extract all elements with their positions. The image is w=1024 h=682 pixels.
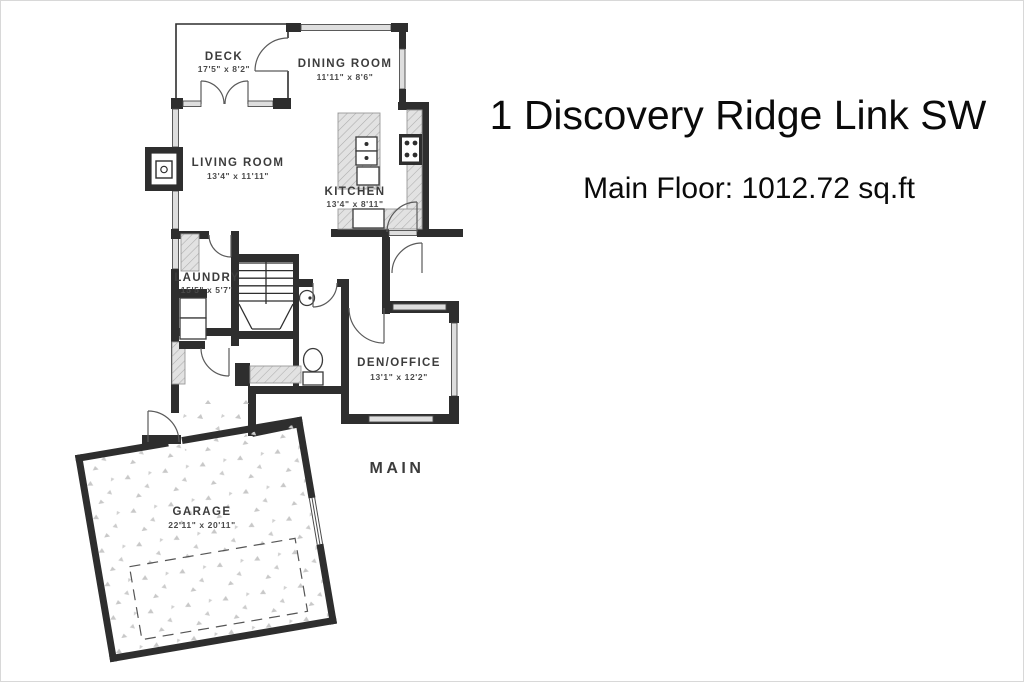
room-garage: [75, 417, 337, 663]
mudroom-bench: [250, 366, 301, 383]
floor-caption: MAIN: [370, 460, 425, 477]
garage-label: GARAGE: [173, 506, 232, 518]
laundry-counter: [181, 234, 199, 271]
living-room-label: LIVING ROOM: [192, 157, 285, 169]
floor-plan-drawing: 1 Discovery Ridge Link SW Main Floor: 10…: [1, 1, 1024, 682]
dining-room-label: DINING ROOM: [298, 58, 393, 70]
floor-plan-page: 1 Discovery Ridge Link SW Main Floor: 10…: [0, 0, 1024, 682]
kitchen-label: KITCHEN: [325, 186, 386, 198]
deck-dims: 17'5" x 8'2": [198, 64, 250, 74]
toilet-tank-icon: [303, 372, 323, 385]
dishwasher: [357, 167, 379, 185]
staircase: [239, 256, 293, 329]
washer: [180, 298, 206, 318]
dining-room-dims: 11'11" x 8'6": [317, 72, 374, 82]
kitchen-fixtures: [338, 110, 422, 232]
living-room-dims: 13'4" x 11'11": [207, 171, 269, 181]
kitchen-appliance: [353, 209, 384, 228]
den-office-label: DEN/OFFICE: [357, 357, 441, 369]
page-subtitle: Main Floor: 1012.72 sq.ft: [583, 172, 916, 205]
kitchen-dims: 13'4" x 8'11": [326, 199, 383, 209]
laundry-dims: 15'5" x 5'7": [181, 285, 233, 295]
dryer: [180, 318, 206, 339]
powder-room-fixtures: [300, 283, 338, 385]
pedestal-sink-icon: [300, 291, 315, 306]
fireplace-icon: [145, 147, 183, 191]
toilet-bowl-icon: [304, 349, 323, 372]
laundry-label: LAUNDRY: [174, 272, 240, 284]
stove-icon: [399, 134, 422, 165]
page-title: 1 Discovery Ridge Link SW: [490, 92, 987, 138]
garage-dims: 22'11" x 20'11": [168, 520, 235, 530]
deck-label: DECK: [205, 51, 243, 63]
den-office-dims: 13'1" x 12'2": [370, 372, 428, 382]
